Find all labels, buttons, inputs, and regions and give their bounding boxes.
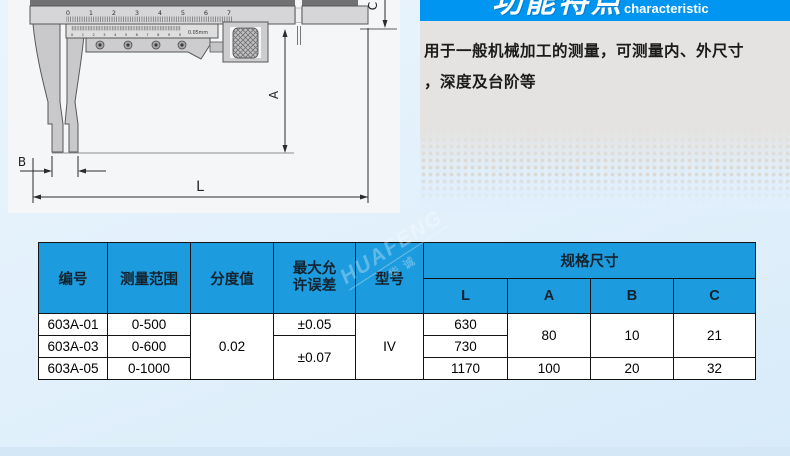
table-header-row-1: 编号 测量范围 分度值 最大允 许误差 型号 规格尺寸 <box>39 243 756 279</box>
cell-range: 0-500 <box>108 314 191 336</box>
cell-range: 0-1000 <box>108 358 191 380</box>
col-header-a: A <box>508 279 591 314</box>
col-header-max-error: 最大允 许误差 <box>274 243 356 314</box>
spec-table-wrap: 编号 测量范围 分度值 最大允 许误差 型号 规格尺寸 L A B C 603A… <box>38 242 756 380</box>
dimension-l-label: L <box>196 179 204 195</box>
cell-dim-b: 10 <box>591 314 674 358</box>
col-header-range: 测量范围 <box>108 243 191 314</box>
scale-number: 5 <box>181 9 185 17</box>
cell-range: 0-600 <box>108 336 191 358</box>
max-error-line1: 最大允 <box>274 261 355 278</box>
dimension-c-label: C <box>366 2 380 10</box>
col-header-model: 型号 <box>356 243 424 314</box>
thumbwheel <box>233 28 258 58</box>
cell-max-error: ±0.05 <box>274 314 356 336</box>
caliper-diagram-panel: 0 1 2 3 4 5 6 7 0 1 2 3 4 5 6 7 8 9 0 0 <box>8 0 400 213</box>
vernier-slider: 0 1 2 3 4 5 6 7 8 9 0 0.05mm <box>66 22 268 62</box>
cell-part-no: 603A-01 <box>39 314 108 336</box>
scale-number: 0 <box>66 9 70 17</box>
feature-subtitle: characteristic <box>624 2 709 15</box>
halftone-fade-decoration <box>420 129 790 211</box>
cell-part-no: 603A-03 <box>39 336 108 358</box>
cell-dim-a: 80 <box>508 314 591 358</box>
feature-header-bar: 功能特点 characteristic <box>420 0 790 21</box>
cell-dim-c: 21 <box>674 314 756 358</box>
cell-model: IV <box>356 314 424 380</box>
scale-number: 6 <box>204 9 208 17</box>
feature-description-line1: 用于一般机械加工的测量，可测量内、外尺寸 <box>424 36 786 67</box>
dimension-b-label: B <box>18 155 26 169</box>
scale-number: 3 <box>135 9 139 17</box>
cell-dim-a: 100 <box>508 358 591 380</box>
dimension-a-label: A <box>267 90 281 99</box>
vernier-unit-label: 0.05mm <box>188 30 208 36</box>
table-row: 603A-01 0-500 0.02 ±0.05 IV 630 80 10 21 <box>39 314 756 336</box>
spec-table: 编号 测量范围 分度值 最大允 许误差 型号 规格尺寸 L A B C 603A… <box>38 242 756 380</box>
caliper-jaws <box>33 24 85 152</box>
caliper-diagram: 0 1 2 3 4 5 6 7 0 1 2 3 4 5 6 7 8 9 0 0 <box>8 0 400 213</box>
cell-dim-l: 630 <box>424 314 508 336</box>
product-spec-page: 0 1 2 3 4 5 6 7 0 1 2 3 4 5 6 7 8 9 0 0 <box>0 0 790 456</box>
cell-part-no: 603A-05 <box>39 358 108 380</box>
cell-dim-b: 20 <box>591 358 674 380</box>
cell-max-error: ±0.07 <box>274 336 356 380</box>
scale-number: 2 <box>112 9 116 17</box>
col-header-spec-dims: 规格尺寸 <box>424 243 756 279</box>
scale-number: 4 <box>158 9 162 17</box>
col-header-b: B <box>591 279 674 314</box>
cell-dim-c: 32 <box>674 358 756 380</box>
col-header-graduation: 分度值 <box>191 243 274 314</box>
col-header-c: C <box>674 279 756 314</box>
feature-description-box: 用于一般机械加工的测量，可测量内、外尺寸 ，深度及台阶等 <box>420 21 790 129</box>
col-header-l: L <box>424 279 508 314</box>
feature-section: 功能特点 characteristic 用于一般机械加工的测量，可测量内、外尺寸… <box>420 0 790 215</box>
bottom-strip-decoration <box>0 447 790 456</box>
cell-dim-l: 1170 <box>424 358 508 380</box>
cell-graduation: 0.02 <box>191 314 274 380</box>
feature-description-line2: ，深度及台阶等 <box>424 67 786 98</box>
cell-dim-l: 730 <box>424 336 508 358</box>
feature-title: 功能特点 <box>492 0 624 18</box>
max-error-line2: 许误差 <box>274 278 355 295</box>
scale-number: 1 <box>89 9 93 17</box>
scale-number: 7 <box>227 9 231 17</box>
col-header-part-no: 编号 <box>39 243 108 314</box>
